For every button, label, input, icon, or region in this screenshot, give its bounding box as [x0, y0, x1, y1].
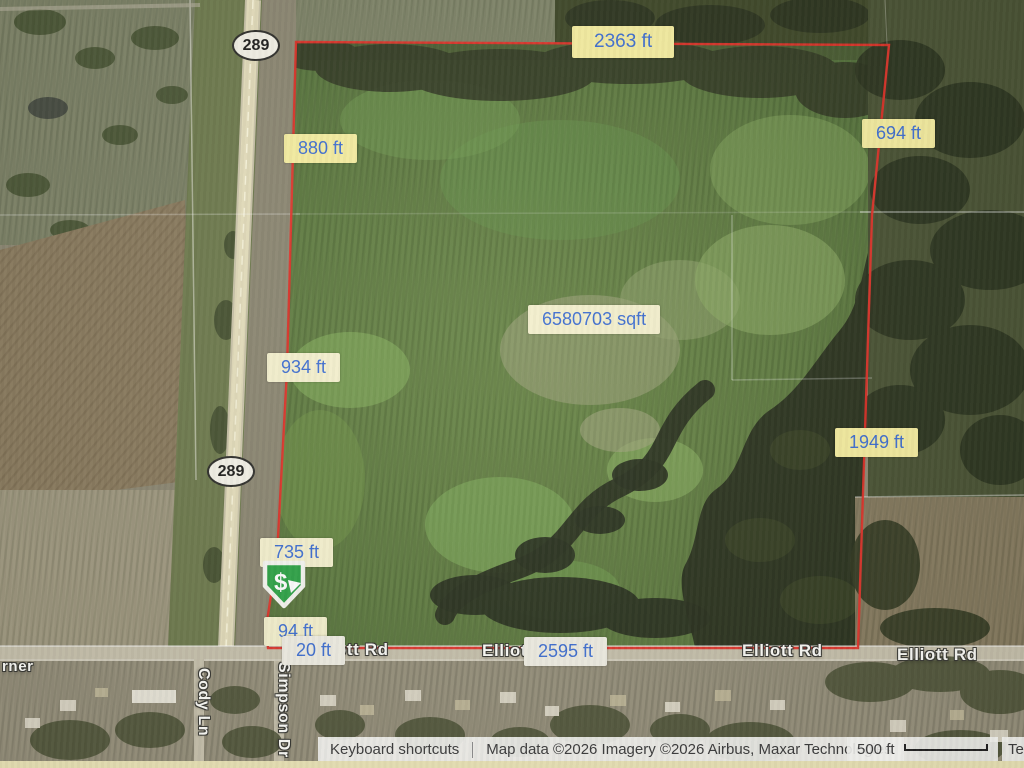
distance-label-right-upper: 694 ft — [862, 119, 935, 148]
road-label-partial: rner — [2, 658, 34, 675]
statusbar-divider — [472, 742, 473, 758]
road-label-elliott-east: Elliott Rd — [742, 641, 823, 661]
terms-label: Te — [1008, 741, 1024, 758]
distance-label-bottom: 2595 ft — [524, 637, 607, 666]
screen-edge-strip — [0, 761, 1024, 768]
distance-label-left-middle: 934 ft — [267, 353, 340, 382]
route-shield-label: 289 — [243, 37, 270, 55]
scale-bar — [904, 744, 988, 751]
distance-label-20ft: 20 ft — [282, 636, 345, 665]
marker-pin-icon: $ — [256, 556, 312, 612]
keyboard-shortcuts-link[interactable]: Keyboard shortcuts — [330, 741, 459, 758]
area-label: 6580703 sqft — [528, 305, 660, 334]
distance-label-left-upper: 880 ft — [284, 134, 357, 163]
terms-link[interactable]: Te — [1002, 737, 1024, 762]
road-label-cody-ln: Cody Ln — [194, 668, 212, 736]
listing-marker[interactable]: $ — [256, 556, 312, 612]
distance-label-right-lower: 1949 ft — [835, 428, 918, 457]
route-shield-289-top: 289 — [232, 30, 280, 61]
scale-control[interactable]: 500 ft — [847, 737, 998, 762]
route-shield-289-bottom: 289 — [207, 456, 255, 487]
scale-text: 500 ft — [857, 741, 895, 758]
status-bar: Keyboard shortcuts Map data ©2026 Imager… — [318, 737, 904, 762]
road-label-simpson-dr: Simpson Dr — [274, 662, 292, 758]
map-canvas[interactable]: 289 289 Elliott Rd Elliott Rd Elliott Rd… — [0, 0, 1024, 768]
map-attribution: Map data ©2026 Imagery ©2026 Airbus, Max… — [486, 741, 891, 758]
distance-label-top: 2363 ft — [572, 26, 674, 58]
dollar-sign-icon: $ — [274, 569, 288, 596]
road-label-elliott-far-east: Elliott Rd — [897, 645, 978, 665]
route-shield-label: 289 — [218, 463, 245, 481]
